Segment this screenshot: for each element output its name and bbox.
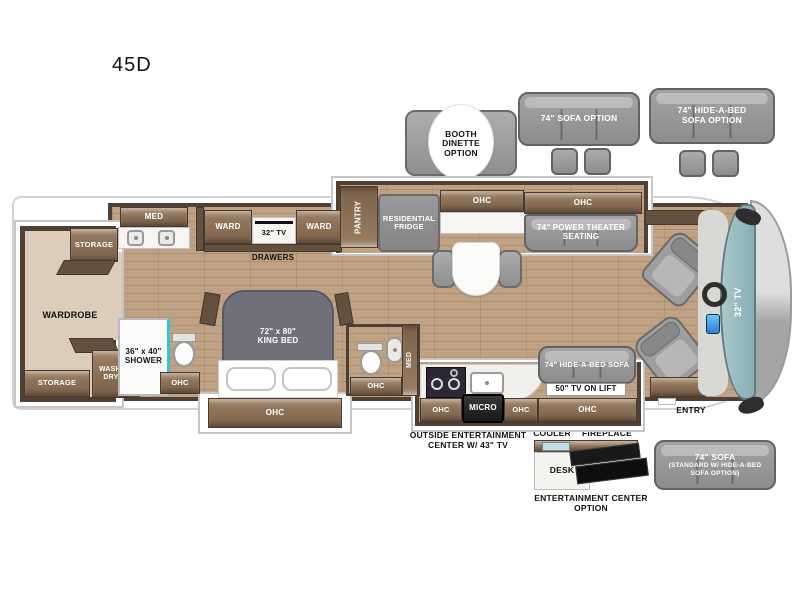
sofa-standard-title: 74" SOFA: [695, 453, 736, 463]
wardrobe-label: WARDROBE: [26, 308, 114, 322]
ohc-label: OHC: [432, 406, 449, 414]
storage-cabinet-bottom: STORAGE: [24, 370, 90, 397]
residential-fridge: RESIDENTIAL FRIDGE: [378, 194, 440, 252]
storage-cabinet-top: STORAGE: [70, 228, 118, 262]
front-cap: [750, 200, 792, 404]
hide-a-bed-sofa-option: 74" HIDE-A-BED SOFA OPTION: [649, 88, 775, 144]
fridge-label: RESIDENTIAL FRIDGE: [383, 215, 435, 232]
entry-label: ENTRY: [664, 405, 718, 417]
sink: [386, 337, 403, 363]
entertainment-center-option-label: ENTERTAINMENT CENTER OPTION: [526, 492, 656, 516]
floorplan-page: 45D BOOTH DINETTE OPTION 74" SOFA OPTION…: [0, 0, 800, 600]
micro-label: MICRO: [469, 404, 497, 413]
med-cabinet-half-bath: MED: [402, 324, 418, 396]
ohc-label: OHC: [512, 406, 529, 414]
theater-seating-label: 74" POWER THEATER SEATING: [537, 224, 625, 242]
burner: [450, 369, 458, 377]
ward-label: WARD: [306, 223, 331, 232]
entry-step-pad: [658, 398, 676, 405]
ohc-living-1: OHC: [440, 190, 524, 212]
tv-screen: [255, 221, 293, 224]
toilet-bowl: [360, 350, 382, 375]
ohc-half-bath: OHC: [350, 377, 402, 396]
ohc-kitchen-3: OHC: [538, 398, 637, 422]
power-theater-seating: 74" POWER THEATER SEATING: [524, 214, 638, 252]
hide-a-bed-sofa: 74" HIDE-A-BED SOFA: [538, 346, 636, 384]
ohc-label: OHC: [578, 406, 596, 415]
ohc-label: OHC: [473, 197, 491, 206]
toilet-bowl: [173, 341, 195, 367]
storage-label: STORAGE: [38, 379, 76, 387]
hide-a-bed-sofa-option-label: 74" HIDE-A-BED SOFA OPTION: [678, 106, 747, 125]
interior-wall: [196, 207, 204, 251]
sink: [127, 230, 144, 246]
burner: [448, 378, 460, 390]
tv-lift: 50" TV ON LIFT: [546, 383, 626, 396]
floorplan-title: 45D: [112, 54, 152, 77]
med-label: MED: [406, 352, 414, 368]
ohc-kitchen-2: OHC: [504, 398, 538, 422]
ohc-bed-slide: OHC: [208, 398, 342, 428]
sofa-standard-labels: 74" SOFA (STANDARD W/ HIDE-A-BED SOFA OP…: [660, 446, 770, 484]
drawers-label: DRAWERS: [230, 253, 316, 264]
king-bed: 72" x 80" KING BED: [222, 290, 334, 370]
king-bed-label: 72" x 80" KING BED: [258, 328, 299, 346]
wardrobe-cabinet-right: WARD: [296, 210, 342, 244]
ohc-label: OHC: [367, 382, 384, 390]
ohc-label: OHC: [574, 199, 592, 208]
ottoman: [712, 150, 739, 177]
pantry: PANTRY: [340, 186, 378, 248]
dinette-table: [452, 242, 500, 296]
pantry-label: PANTRY: [355, 200, 364, 233]
sofa-standard: 74" SOFA (STANDARD W/ HIDE-A-BED SOFA OP…: [654, 440, 776, 490]
tv-lift-label: 50" TV ON LIFT: [555, 385, 616, 394]
ottoman: [679, 150, 706, 177]
storage-label: STORAGE: [75, 241, 113, 249]
sofa-option: 74" SOFA OPTION: [518, 92, 640, 146]
ohc-bath: OHC: [160, 372, 200, 394]
pillow: [282, 367, 332, 391]
cabinet-wedge: [56, 260, 116, 275]
med-cabinet-bath: MED: [120, 207, 188, 227]
med-label: MED: [145, 213, 163, 222]
dinette-chair: [498, 250, 522, 288]
sink: [158, 230, 175, 246]
microwave: MICRO: [462, 394, 504, 423]
ohc-label: OHC: [171, 379, 188, 387]
bedroom-tv-label: 32" TV: [252, 226, 296, 240]
dash-console-screen: [706, 314, 720, 334]
burner: [431, 378, 443, 390]
ward-label: WARD: [215, 223, 240, 232]
desk-label: DESK: [550, 466, 574, 476]
steering-wheel: [702, 282, 727, 307]
drawer-bank: [204, 244, 342, 252]
pillow: [226, 367, 276, 391]
ohc-living-2: OHC: [524, 192, 642, 214]
booth-dinette-option-label: BOOTH DINETTE OPTION: [427, 122, 495, 166]
kitchen-sink: [470, 372, 504, 394]
shower-label: 36" x 40" SHOWER: [125, 348, 162, 366]
sofa-option-label: 74" SOFA OPTION: [541, 114, 618, 124]
ottoman: [584, 148, 611, 175]
wardrobe-cabinet-left: WARD: [204, 210, 252, 244]
ottoman: [551, 148, 578, 175]
cooler: [542, 442, 570, 451]
front-tv-label: 32" TV: [733, 287, 743, 316]
ohc-kitchen-1: OHC: [420, 398, 462, 422]
hide-a-bed-sofa-label: 74" HIDE-A-BED SOFA: [545, 361, 629, 369]
sofa-standard-subtitle: (STANDARD W/ HIDE-A-BED SOFA OPTION): [669, 462, 762, 477]
ohc-label: OHC: [266, 409, 284, 418]
